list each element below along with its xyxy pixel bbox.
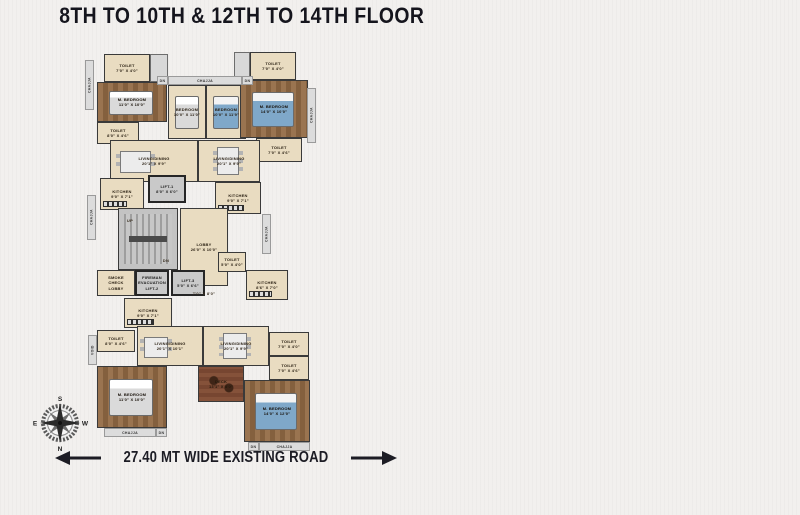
- counter-icon: [127, 319, 154, 325]
- dining4-icon: [120, 151, 151, 173]
- dining6-icon: [217, 147, 239, 175]
- strip-chajja-bottomleft: CHAJJA: [104, 428, 156, 437]
- room-mbedroom-bottomright: M. BEDROOM 14'0" X 12'0": [244, 380, 310, 442]
- strip-void-left: VOID: [88, 335, 97, 365]
- bed-blue-icon: [255, 393, 297, 430]
- compass-rose: S N E W: [31, 394, 89, 452]
- bed-gray-icon: [109, 379, 153, 416]
- room-toilet-bottomleft: TOILET 8'0" X 4'6": [97, 330, 135, 352]
- bed-gray-icon: [109, 91, 153, 115]
- counter-icon: [249, 291, 272, 297]
- strip-stairs-up: UP: [123, 216, 137, 224]
- road-annotation: 27.40 MT WIDE EXISTING ROAD: [55, 449, 357, 467]
- room-label: SMOKE CHECK LOBBY: [98, 271, 134, 295]
- compass-letter-south: S: [58, 396, 63, 403]
- strip-chajja-left-top: CHAJJA: [85, 60, 94, 110]
- room-label: TOILET 5'0" X 4'0": [219, 253, 245, 271]
- room-kitchen-bottomleft: KITCHEN 9'0" X 7'1": [124, 298, 172, 328]
- room-toilet-topright-2: TOILET 7'0" X 4'6": [256, 138, 302, 162]
- strip-chajja-left-mid: CHAJJA: [87, 195, 96, 240]
- arrow-right-icon: [351, 450, 397, 466]
- room-kitchen-topleft: KITCHEN 9'0" X 7'1": [100, 178, 144, 210]
- room-label: TOILET 7'0" X 4'0": [105, 55, 149, 81]
- room-label: TOILET 7'0" X 4'6": [257, 139, 301, 161]
- room-living-dining-bottomleft: LIVING/DINING 20'1" X 10'1": [137, 326, 203, 366]
- bed-gray-icon: [175, 96, 199, 128]
- room-fireman-evacuation-lift-2: FIREMAN EVACUATION LIFT-2: [135, 270, 169, 296]
- room-smoke-check-lobby: SMOKE CHECK LOBBY: [97, 270, 135, 296]
- room-kitchen-bottomright: KITCHEN 8'6" X 7'0": [246, 270, 288, 300]
- strip-dn-top-right: DN: [242, 76, 253, 85]
- strip-passage-dim: 7'0" X 8'0": [180, 288, 228, 298]
- strip-chajja-top: CHAJJA: [168, 76, 242, 85]
- room-mbedroom-bottomleft: M. BEDROOM 11'0" X 10'0": [97, 366, 167, 428]
- room-toilet-bottomright: TOILET 7'0" X 4'0": [269, 332, 309, 356]
- room-living-dining-topright: LIVING/DINING 20'1" X 9'9": [198, 140, 260, 182]
- dining4-icon: [144, 337, 168, 358]
- screenshot-canvas: 8TH TO 10TH & 12TH TO 14TH FLOOR TOILET …: [0, 0, 800, 515]
- strip-stairs-dn: DN: [159, 256, 173, 264]
- strip-dn-top-left: DN: [157, 76, 168, 85]
- room-label: TOILET 8'0" X 4'6": [98, 331, 134, 351]
- room-mbedroom-topright: M. BEDROOM 14'0" X 10'0": [240, 80, 308, 138]
- dining6-icon: [223, 333, 247, 359]
- room-deck: DECK 13'1" X 8'0": [198, 366, 244, 402]
- room-toilet-topright: TOILET 7'0" X 4'0": [250, 52, 296, 80]
- compass-letter-west: W: [82, 421, 89, 428]
- room-label: TOILET 7'0" X 4'0": [270, 333, 308, 355]
- road-label: 27.40 MT WIDE EXISTING ROAD: [123, 449, 328, 467]
- arrow-left-icon: [55, 450, 101, 466]
- room-label: TOILET 7'0" X 4'6": [270, 357, 308, 379]
- floor-plan: TOILET 7'0" X 4'0"M. BEDROOM 11'0" X 10'…: [85, 30, 317, 458]
- strip-chajja-right-top: CHAJJA: [307, 88, 316, 143]
- room-lift-1: LIFT-1 8'0" X 6'0": [148, 175, 186, 203]
- room-bedroom-left: BEDROOM 10'0" X 11'0": [168, 85, 206, 139]
- room-living-dining-bottomright: LIVING/DINING 20'1" X 9'9": [203, 326, 269, 366]
- room-label: FIREMAN EVACUATION LIFT-2: [137, 272, 167, 294]
- room-label: TOILET 7'0" X 4'0": [251, 53, 295, 79]
- strip-chajja-right-mid: CHAJJA: [262, 214, 271, 254]
- room-label: LIFT-1 8'0" X 6'0": [150, 177, 184, 201]
- room-toilet-bottomright-2: TOILET 7'0" X 4'6": [269, 356, 309, 380]
- compass-letter-east: E: [33, 421, 38, 428]
- room-toilet-topleft: TOILET 7'0" X 4'0": [104, 54, 150, 82]
- page-title: 8TH TO 10TH & 12TH TO 14TH FLOOR: [59, 3, 341, 29]
- room-toilet-core: TOILET 5'0" X 4'0": [218, 252, 246, 272]
- strip-dn-bottomleft: DN: [156, 428, 167, 437]
- bed-blue-icon: [252, 92, 295, 126]
- deck-chairs-icon: [203, 370, 238, 397]
- room-mbedroom-topleft: M. BEDROOM 11'0" X 10'0": [97, 82, 167, 122]
- bed-blue-icon: [213, 96, 239, 128]
- counter-icon: [103, 201, 127, 207]
